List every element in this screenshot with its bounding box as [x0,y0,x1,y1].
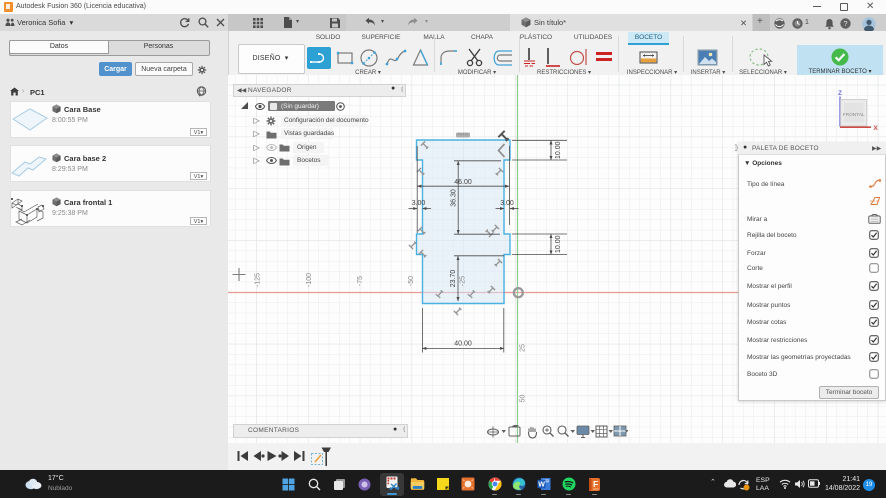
svg-text:X: X [873,125,878,132]
svg-text:-75: -75 [357,276,364,286]
svg-text:10.00: 10.00 [555,141,562,159]
svg-text:FRONTAL: FRONTAL [843,112,865,118]
svg-text:3.00: 3.00 [412,200,426,207]
svg-text:Z: Z [838,90,842,97]
svg-text:3.00: 3.00 [500,200,514,207]
svg-text:25: 25 [520,344,527,352]
svg-text:50: 50 [520,395,527,403]
svg-text:F: F [593,479,598,489]
svg-text:23.70: 23.70 [450,270,457,288]
svg-text:W: W [538,482,545,489]
svg-text:46.00: 46.00 [454,179,472,186]
svg-text:40.00: 40.00 [454,341,472,348]
svg-text:10.00: 10.00 [555,235,562,253]
svg-text:-100: -100 [306,273,313,287]
svg-text:-25: -25 [460,276,467,286]
svg-text:-50: -50 [408,276,415,286]
svg-text:-125: -125 [255,273,262,287]
svg-text:?: ? [843,19,847,28]
svg-text:36.30: 36.30 [451,189,458,207]
